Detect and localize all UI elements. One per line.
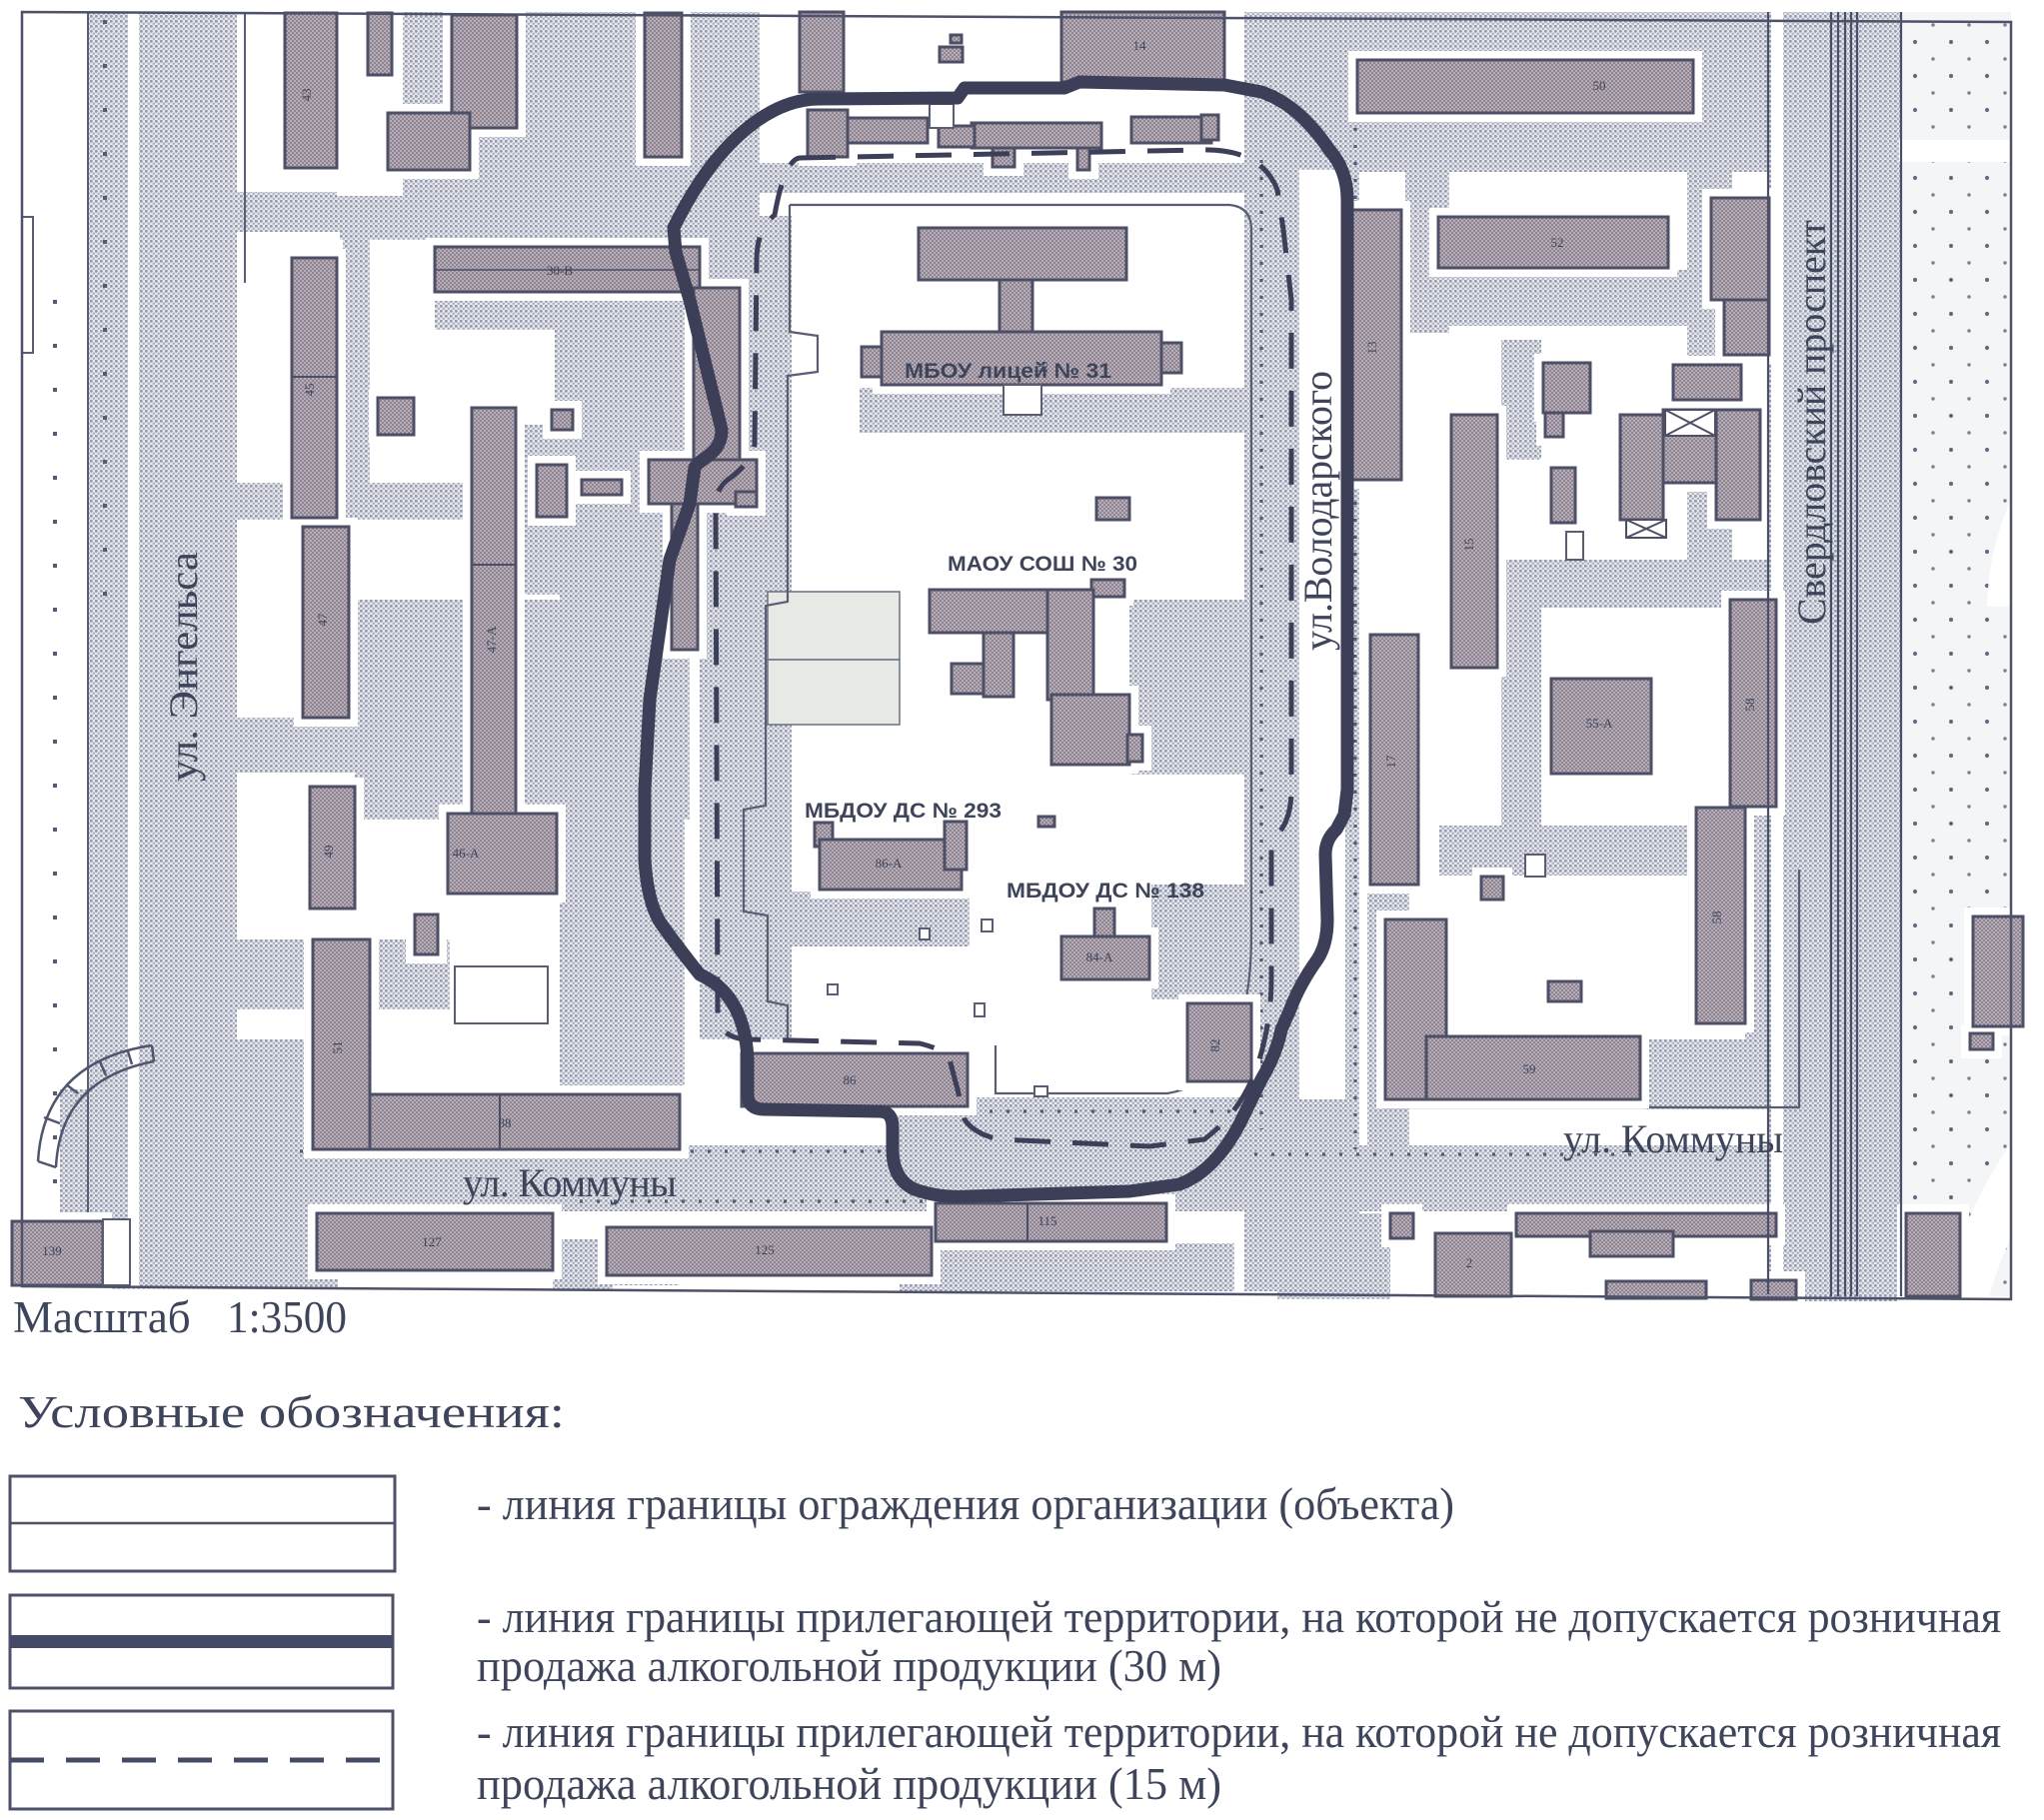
svg-text:30-В: 30-В bbox=[547, 263, 573, 278]
svg-text:86-А: 86-А bbox=[876, 856, 903, 871]
svg-text:15: 15 bbox=[1035, 362, 1050, 375]
svg-text:2: 2 bbox=[1466, 1255, 1473, 1270]
svg-text:ул.Володарского: ул.Володарского bbox=[1295, 371, 1340, 651]
svg-text:ул. Коммуны: ул. Коммуны bbox=[1563, 1116, 1783, 1161]
svg-text:55-А: 55-А bbox=[1586, 716, 1613, 731]
svg-text:58: 58 bbox=[1742, 699, 1757, 712]
svg-text:ул. Коммуны: ул. Коммуны bbox=[463, 1160, 677, 1205]
svg-text:52: 52 bbox=[1551, 235, 1564, 250]
svg-text:МБОУ лицей № 31: МБОУ лицей № 31 bbox=[905, 360, 1111, 383]
svg-text:139: 139 bbox=[42, 1243, 62, 1258]
svg-text:13: 13 bbox=[1364, 342, 1379, 355]
svg-text:Масштаб: Масштаб bbox=[13, 1292, 191, 1342]
svg-text:Условные обозначения:: Условные обозначения: bbox=[18, 1387, 565, 1437]
svg-text:127: 127 bbox=[422, 1234, 442, 1249]
svg-text:47: 47 bbox=[315, 613, 330, 627]
svg-text:14: 14 bbox=[1133, 38, 1147, 53]
svg-text:- линия границы ограждения орг: - линия границы ограждения организации (… bbox=[477, 1479, 1454, 1529]
svg-text:82: 82 bbox=[1207, 1039, 1222, 1052]
svg-text:125: 125 bbox=[755, 1242, 775, 1257]
svg-text:ул. Энгельса: ул. Энгельса bbox=[161, 552, 206, 782]
svg-text:17: 17 bbox=[1383, 755, 1398, 769]
svg-text:49: 49 bbox=[321, 846, 336, 859]
svg-text:1:3500: 1:3500 bbox=[227, 1292, 347, 1342]
svg-text:58: 58 bbox=[1709, 911, 1724, 924]
svg-text:МАОУ СОШ № 30: МАОУ СОШ № 30 bbox=[948, 553, 1137, 576]
svg-text:- линия границы прилегающей те: - линия границы прилегающей территории, … bbox=[477, 1592, 2001, 1642]
svg-text:45: 45 bbox=[302, 384, 317, 397]
svg-text:продажа алкогольной продукции: продажа алкогольной продукции (15 м) bbox=[477, 1759, 1221, 1809]
svg-text:86: 86 bbox=[844, 1072, 858, 1087]
svg-text:50: 50 bbox=[1593, 78, 1606, 93]
svg-text:51: 51 bbox=[330, 1041, 345, 1054]
svg-text:продажа алкогольной продукции: продажа алкогольной продукции (30 м) bbox=[477, 1641, 1221, 1691]
svg-text:43: 43 bbox=[299, 89, 314, 102]
svg-text:МБДОУ ДС № 293: МБДОУ ДС № 293 bbox=[805, 800, 1002, 823]
svg-text:15: 15 bbox=[1461, 539, 1476, 552]
svg-text:МБДОУ ДС № 138: МБДОУ ДС № 138 bbox=[1007, 880, 1204, 903]
svg-text:59: 59 bbox=[1523, 1061, 1536, 1076]
svg-text:88: 88 bbox=[499, 1115, 512, 1130]
svg-text:46-А: 46-А bbox=[453, 846, 480, 861]
svg-text:115: 115 bbox=[1037, 1213, 1056, 1228]
svg-text:- линия границы прилегающей те: - линия границы прилегающей территории, … bbox=[477, 1707, 2001, 1757]
svg-text:Свердловский проспект: Свердловский проспект bbox=[1789, 220, 1834, 625]
svg-text:84-А: 84-А bbox=[1086, 949, 1113, 964]
svg-text:47-А: 47-А bbox=[484, 626, 499, 653]
